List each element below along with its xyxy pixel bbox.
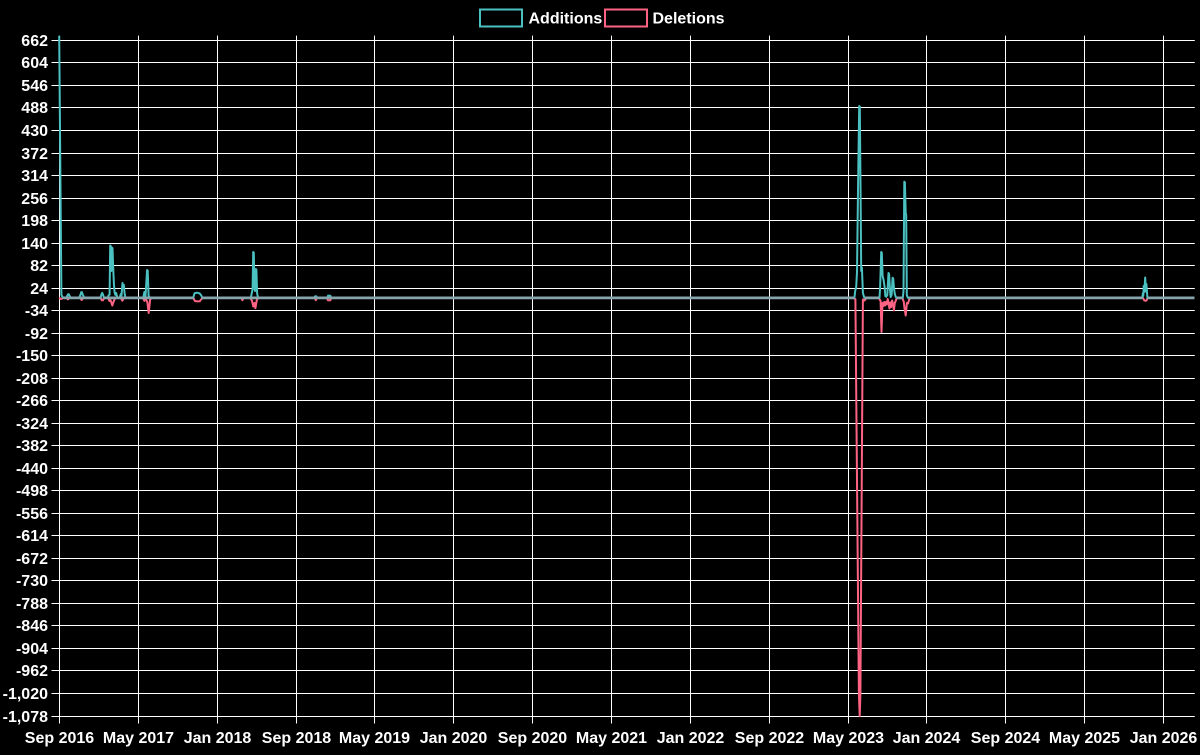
svg-text:Additions: Additions	[529, 11, 603, 28]
svg-text:May 2023: May 2023	[813, 730, 884, 747]
svg-text:-440: -440	[16, 461, 48, 478]
svg-text:Deletions: Deletions	[653, 11, 725, 28]
svg-text:Jan 2024: Jan 2024	[893, 730, 961, 747]
svg-text:604: 604	[21, 55, 48, 72]
svg-text:-1,078: -1,078	[3, 709, 48, 726]
svg-text:314: 314	[21, 168, 48, 185]
svg-text:Sep 2022: Sep 2022	[735, 730, 804, 747]
svg-text:140: 140	[21, 236, 48, 253]
svg-text:Jan 2018: Jan 2018	[184, 730, 252, 747]
svg-text:-150: -150	[16, 348, 48, 365]
svg-text:256: 256	[21, 191, 48, 208]
svg-text:-498: -498	[16, 483, 48, 500]
svg-text:May 2019: May 2019	[339, 730, 410, 747]
svg-text:Sep 2016: Sep 2016	[25, 730, 94, 747]
svg-text:Sep 2024: Sep 2024	[971, 730, 1040, 747]
svg-text:May 2017: May 2017	[103, 730, 174, 747]
svg-text:Jan 2022: Jan 2022	[657, 730, 725, 747]
svg-text:-904: -904	[16, 641, 48, 658]
svg-text:-788: -788	[16, 596, 48, 613]
svg-text:82: 82	[30, 258, 48, 275]
svg-text:372: 372	[21, 146, 48, 163]
svg-text:May 2025: May 2025	[1049, 730, 1120, 747]
svg-text:-92: -92	[25, 326, 48, 343]
svg-text:-730: -730	[16, 573, 48, 590]
svg-text:Jan 2026: Jan 2026	[1130, 730, 1198, 747]
svg-text:198: 198	[21, 213, 48, 230]
svg-text:Sep 2018: Sep 2018	[262, 730, 331, 747]
svg-text:Sep 2020: Sep 2020	[498, 730, 567, 747]
svg-text:May 2021: May 2021	[576, 730, 647, 747]
svg-text:-556: -556	[16, 506, 48, 523]
svg-text:Jan 2020: Jan 2020	[420, 730, 488, 747]
svg-text:-382: -382	[16, 438, 48, 455]
svg-text:546: 546	[21, 78, 48, 95]
svg-text:-672: -672	[16, 551, 48, 568]
svg-text:-1,020: -1,020	[3, 686, 48, 703]
svg-text:-962: -962	[16, 663, 48, 680]
svg-text:-266: -266	[16, 393, 48, 410]
svg-text:662: 662	[21, 33, 48, 50]
svg-text:-208: -208	[16, 371, 48, 388]
svg-text:488: 488	[21, 100, 48, 117]
svg-text:-34: -34	[25, 303, 48, 320]
svg-text:-846: -846	[16, 618, 48, 635]
svg-text:24: 24	[30, 281, 48, 298]
svg-text:430: 430	[21, 123, 48, 140]
svg-text:-614: -614	[16, 528, 48, 545]
svg-text:-324: -324	[16, 416, 48, 433]
